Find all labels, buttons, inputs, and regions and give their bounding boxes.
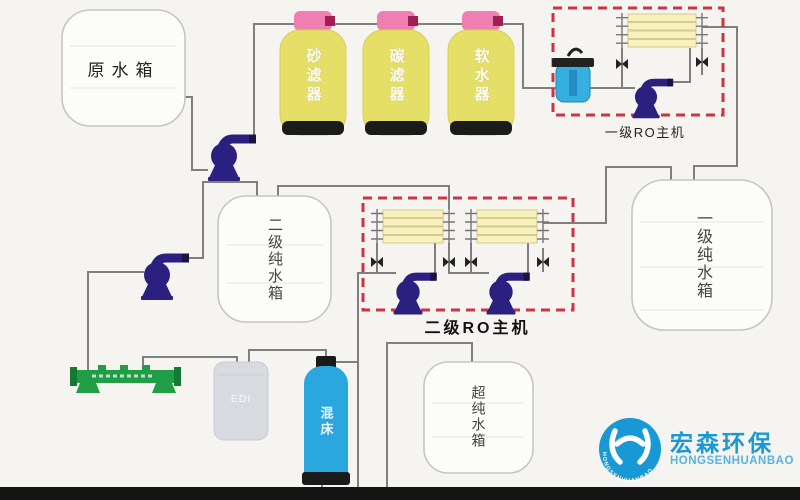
uv-sterilizer-manifold: [70, 365, 181, 393]
pipe-segment: [249, 350, 326, 362]
edi-unit: [214, 362, 268, 440]
stage2-pure-tank: [218, 196, 331, 322]
security-filter-handle: [568, 49, 582, 56]
filter-cap-valve: [408, 16, 418, 26]
stage2-ro-membranes-bank1: [371, 209, 455, 243]
stage1-high-pressure-pump: [632, 79, 673, 119]
pipe-segment: [671, 48, 690, 82]
filter-body: [363, 30, 429, 135]
logo-name-en: HONGSENHUANBAO: [670, 455, 794, 467]
filter-base: [365, 121, 427, 135]
raw-water-tank: [62, 10, 185, 126]
mixed-bed-column: [302, 356, 350, 485]
softener-filter: [448, 11, 514, 135]
pipe-segment: [88, 272, 144, 370]
stage1-ro-membranes: [616, 13, 708, 48]
logo-name-cn: 宏森环保: [670, 424, 774, 458]
carbon-filter: [363, 11, 429, 135]
filter-base: [282, 121, 344, 135]
stage2-high-pressure-pump-2: [487, 273, 530, 315]
stage2-ro-membranes-bank2: [465, 209, 549, 243]
raw-water-pump: [208, 135, 256, 182]
filter-body: [280, 30, 346, 135]
process-flow-diagram: HONGSENHUANBAO 原水箱 砂滤器 碳滤器 软水器 一级RO主机 二级…: [0, 0, 800, 500]
filter-cap-valve: [325, 16, 335, 26]
pipe-segment: [377, 243, 396, 273]
stage2-transfer-pump: [141, 254, 189, 301]
bottom-bar: [0, 487, 800, 500]
ultra-pure-tank: [424, 362, 533, 473]
filter-base: [450, 121, 512, 135]
pipe-segment: [694, 27, 737, 181]
sand-filter: [280, 11, 346, 135]
stage1-pure-tank: [632, 180, 772, 330]
pipe-segment: [358, 273, 377, 487]
security-filter: [552, 49, 594, 102]
filter-cap-valve: [493, 16, 503, 26]
filter-body: [448, 30, 514, 135]
stage2-high-pressure-pump-1: [394, 273, 437, 315]
hongsen-logo-icon: HONGSENHUANBAO: [599, 418, 661, 484]
